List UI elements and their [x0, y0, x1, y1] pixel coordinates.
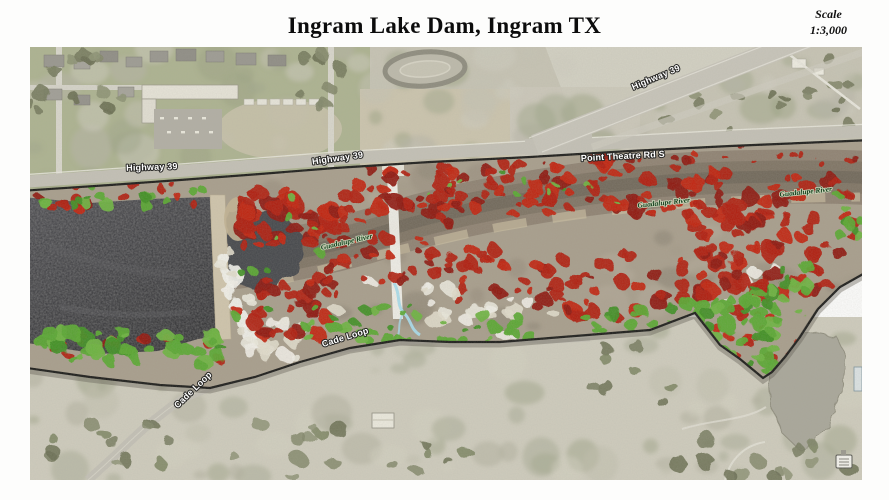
page-title: Ingram Lake Dam, Ingram TX	[0, 13, 889, 39]
map-image: Highway 39Highway 39Highway 39Point Thea…	[30, 47, 862, 480]
scale-label: Scale	[810, 7, 847, 23]
map-svg: Highway 39Highway 39Highway 39Point Thea…	[30, 47, 862, 480]
scale-value: 1:3,000	[810, 23, 847, 39]
page: Ingram Lake Dam, Ingram TX Scale 1:3,000…	[0, 0, 889, 500]
scale-block: Scale 1:3,000	[810, 7, 847, 38]
label-highway-39-west: Highway 39	[126, 161, 178, 173]
imagery-grain	[30, 47, 862, 480]
